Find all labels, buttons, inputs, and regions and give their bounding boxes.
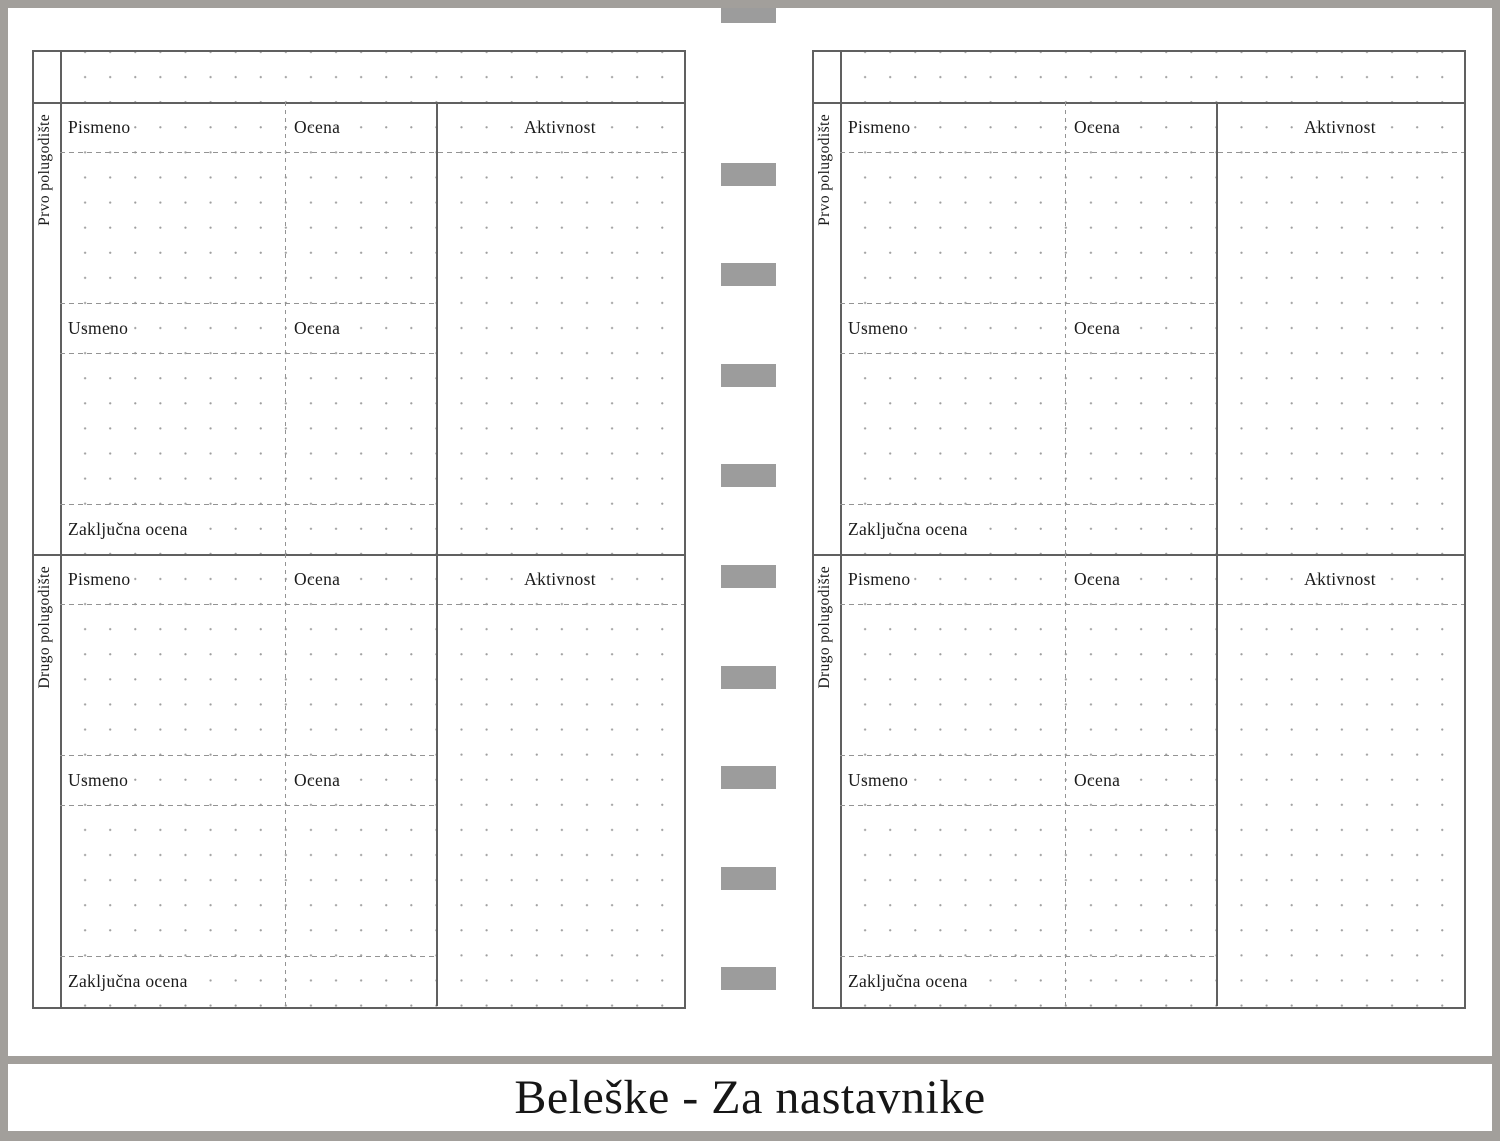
header-dashed-line: [60, 604, 684, 605]
binder-tab: [721, 163, 776, 186]
frame-left: [0, 0, 8, 1141]
frame-right: [1492, 0, 1500, 1141]
grade-column-dashed-divider: [285, 102, 286, 554]
side-label-first-semester: Prvo polugodište: [816, 114, 838, 226]
activity-header-label: Aktivnost: [1216, 102, 1464, 152]
written-header-label: Pismeno: [848, 102, 910, 152]
activity-header-label: Aktivnost: [436, 102, 684, 152]
title-divider-bar: [0, 1056, 1500, 1064]
activity-column-divider: [1216, 102, 1218, 554]
grade-column-dashed-divider: [1065, 554, 1066, 1006]
oral-row-bottom-dashed-line: [60, 353, 436, 354]
written-grade-header-label: Ocena: [294, 554, 340, 604]
binder-tab: [721, 867, 776, 890]
oral-header-label: Usmeno: [848, 755, 908, 805]
page-left: Prvo polugodište Drugo polugodište Pisme…: [32, 50, 686, 1009]
activity-column-divider: [1216, 554, 1218, 1006]
page-title: Beleške - Za nastavnike: [514, 1070, 985, 1125]
written-grade-header-label: Ocena: [1074, 102, 1120, 152]
section-second-semester: Pismeno Ocena Aktivnost Usmeno Ocena Zak…: [840, 554, 1464, 1006]
binder-tab: [721, 967, 776, 990]
activity-column-divider: [436, 554, 438, 1006]
side-label-second-semester: Drugo polugodište: [36, 566, 58, 689]
frame-bottom: [0, 1131, 1500, 1141]
oral-grade-header-label: Ocena: [294, 755, 340, 805]
oral-row-bottom-dashed-line: [840, 805, 1216, 806]
header-dashed-line: [60, 152, 684, 153]
binder-tab: [721, 666, 776, 689]
binder-tab: [721, 565, 776, 588]
section-second-semester: Pismeno Ocena Aktivnost Usmeno Ocena Zak…: [60, 554, 684, 1006]
oral-grade-header-label: Ocena: [1074, 755, 1120, 805]
planner-spread: Prvo polugodište Drugo polugodište Pisme…: [0, 0, 1500, 1141]
section-first-semester: Pismeno Ocena Aktivnost Usmeno Ocena Zak…: [840, 102, 1464, 554]
oral-row-bottom-dashed-line: [840, 353, 1216, 354]
grade-column-dashed-divider: [285, 554, 286, 1006]
oral-header-label: Usmeno: [68, 755, 128, 805]
written-header-label: Pismeno: [68, 102, 130, 152]
written-grade-header-label: Ocena: [294, 102, 340, 152]
grade-column-dashed-divider: [1065, 102, 1066, 554]
activity-header-label: Aktivnost: [1216, 554, 1464, 604]
binder-tab: [721, 766, 776, 789]
oral-row-bottom-dashed-line: [60, 805, 436, 806]
frame-top: [0, 0, 1500, 8]
binder-tab: [721, 263, 776, 286]
final-grade-label: Zaključna ocena: [848, 504, 968, 554]
oral-header-label: Usmeno: [68, 303, 128, 353]
oral-grade-header-label: Ocena: [1074, 303, 1120, 353]
header-dashed-line: [840, 152, 1464, 153]
binder-tab: [721, 364, 776, 387]
written-header-label: Pismeno: [848, 554, 910, 604]
written-header-label: Pismeno: [68, 554, 130, 604]
final-grade-label: Zaključna ocena: [848, 956, 968, 1006]
activity-header-label: Aktivnost: [436, 554, 684, 604]
header-dashed-line: [840, 604, 1464, 605]
final-grade-label: Zaključna ocena: [68, 956, 188, 1006]
side-label-first-semester: Prvo polugodište: [36, 114, 58, 226]
binder-tab: [721, 464, 776, 487]
section-first-semester: Pismeno Ocena Aktivnost Usmeno Ocena Zak…: [60, 102, 684, 554]
oral-header-label: Usmeno: [848, 303, 908, 353]
written-grade-header-label: Ocena: [1074, 554, 1120, 604]
final-grade-label: Zaključna ocena: [68, 504, 188, 554]
title-strip: Beleške - Za nastavnike: [0, 1064, 1500, 1131]
page-right: Prvo polugodište Drugo polugodište Pisme…: [812, 50, 1466, 1009]
oral-grade-header-label: Ocena: [294, 303, 340, 353]
side-label-second-semester: Drugo polugodište: [816, 566, 838, 689]
activity-column-divider: [436, 102, 438, 554]
